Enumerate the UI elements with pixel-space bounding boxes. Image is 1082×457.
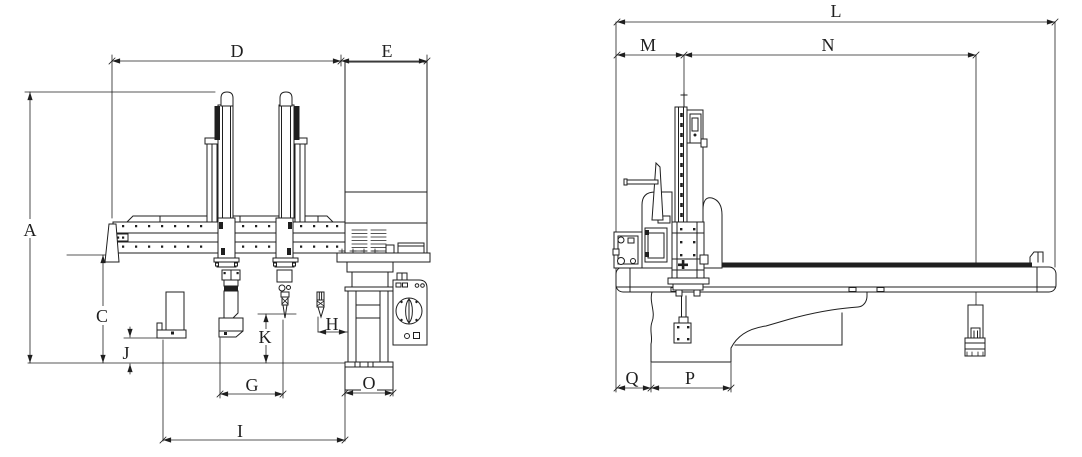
dim-label-k: K — [259, 327, 272, 347]
front-view: A C D E J K H G O I — [23, 41, 430, 443]
dim-label-n: N — [822, 35, 835, 55]
dim-label-o: O — [363, 373, 376, 393]
arm1-black-strip — [215, 106, 221, 140]
dim-label-g: G — [246, 375, 259, 395]
housing-upper-box — [345, 62, 427, 192]
dim-label-h: H — [326, 314, 339, 334]
arm2-top-cap — [280, 92, 292, 106]
pedestal-column — [348, 291, 388, 362]
side-gripper-right — [965, 305, 985, 356]
housing-side-box — [398, 243, 424, 253]
gripper3-needle-tip — [283, 305, 287, 318]
side-column — [675, 93, 707, 222]
dim-label-m: M — [640, 35, 656, 55]
arm1-top-cap — [221, 92, 233, 106]
dim-label-p: P — [685, 368, 695, 388]
pedestal-top-plate — [337, 253, 430, 262]
dim-label-l: L — [831, 1, 842, 21]
gripper-arm-left — [157, 292, 186, 338]
technical-drawing: A C D E J K H G O I — [0, 0, 1082, 457]
dim-label-c: C — [96, 306, 108, 326]
drawing-canvas: A C D E J K H G O I — [0, 0, 1082, 457]
side-view: L M N Q P — [613, 1, 1058, 392]
side-carriage — [668, 222, 709, 296]
dim-label-i: I — [237, 421, 243, 441]
dim-label-a: A — [24, 220, 37, 240]
housing-mid-box — [345, 192, 427, 223]
gripper1-body — [166, 292, 184, 330]
gripper-under-arm1 — [219, 270, 243, 337]
gripper2-black-band — [224, 286, 238, 291]
arm2-black-strip — [294, 106, 300, 140]
dim-label-q: Q — [626, 368, 639, 388]
control-housing — [345, 62, 427, 253]
motor-cluster — [613, 232, 642, 268]
beam-end-plate — [105, 224, 119, 262]
column-side-tab — [701, 139, 707, 147]
pedestal-plate2 — [347, 262, 393, 272]
rail-end-bracket — [1030, 252, 1043, 262]
carriage-cross-v — [682, 260, 685, 269]
gripper-column — [968, 305, 983, 338]
fin — [652, 163, 663, 220]
gripper-under-arm2 — [277, 270, 292, 318]
nozzle-tool — [317, 292, 324, 317]
rail-right-segment — [706, 263, 1032, 267]
vent-slots — [352, 230, 386, 251]
lever-arm — [626, 180, 658, 184]
dim-label-j: J — [122, 343, 129, 363]
pedestal-flange — [345, 287, 396, 291]
gripper2-body — [224, 291, 238, 318]
gripper3-mount — [277, 270, 292, 282]
dim-label-d: D — [231, 41, 244, 61]
gripper2-foot — [219, 318, 243, 337]
dim-label-e: E — [382, 41, 393, 61]
control-panel — [393, 273, 427, 345]
gripper-head — [965, 338, 985, 356]
pedestal-neck — [352, 272, 388, 287]
